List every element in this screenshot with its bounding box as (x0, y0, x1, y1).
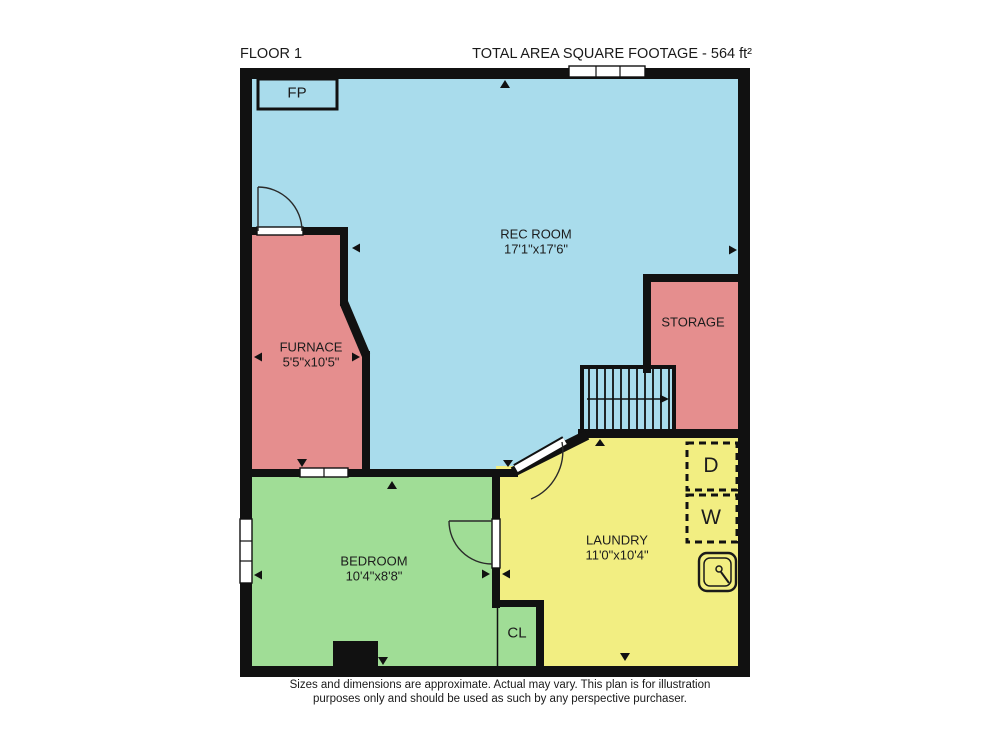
disclaimer: Sizes and dimensions are approximate. Ac… (215, 679, 785, 706)
laundry-dimensions: 11'0"x10'4" (585, 548, 648, 563)
furnace-label: FURNACE (280, 340, 343, 355)
bedroom-dimensions: 10'4"x8'8" (346, 569, 403, 584)
bedroom-label: BEDROOM (340, 554, 407, 569)
disclaimer-line-2: purposes only and should be used as such… (215, 693, 785, 707)
disclaimer-line-1: Sizes and dimensions are approximate. Ac… (215, 679, 785, 693)
storage-label: STORAGE (661, 315, 724, 330)
chimney-block (333, 641, 378, 672)
bedroom-window (240, 519, 252, 583)
furnace-dimensions: 5'5"x10'5" (283, 355, 340, 370)
floor-plan-drawing (0, 0, 1000, 735)
furnace-door-opening (257, 227, 303, 235)
laundry-label: LAUNDRY (586, 533, 648, 548)
floor-plan-page: FLOOR 1 TOTAL AREA SQUARE FOOTAGE - 564 … (0, 0, 1000, 735)
washer-label: W (701, 506, 721, 530)
fireplace-label: FP (287, 85, 306, 102)
rec-room-dimensions: 17'1"x17'6" (504, 242, 568, 257)
bedroom-door-opening (492, 519, 500, 568)
rec-room-label: REC ROOM (500, 227, 572, 242)
closet-label: CL (507, 625, 526, 642)
dryer-label: D (703, 454, 718, 478)
rec-room-window (569, 66, 645, 77)
